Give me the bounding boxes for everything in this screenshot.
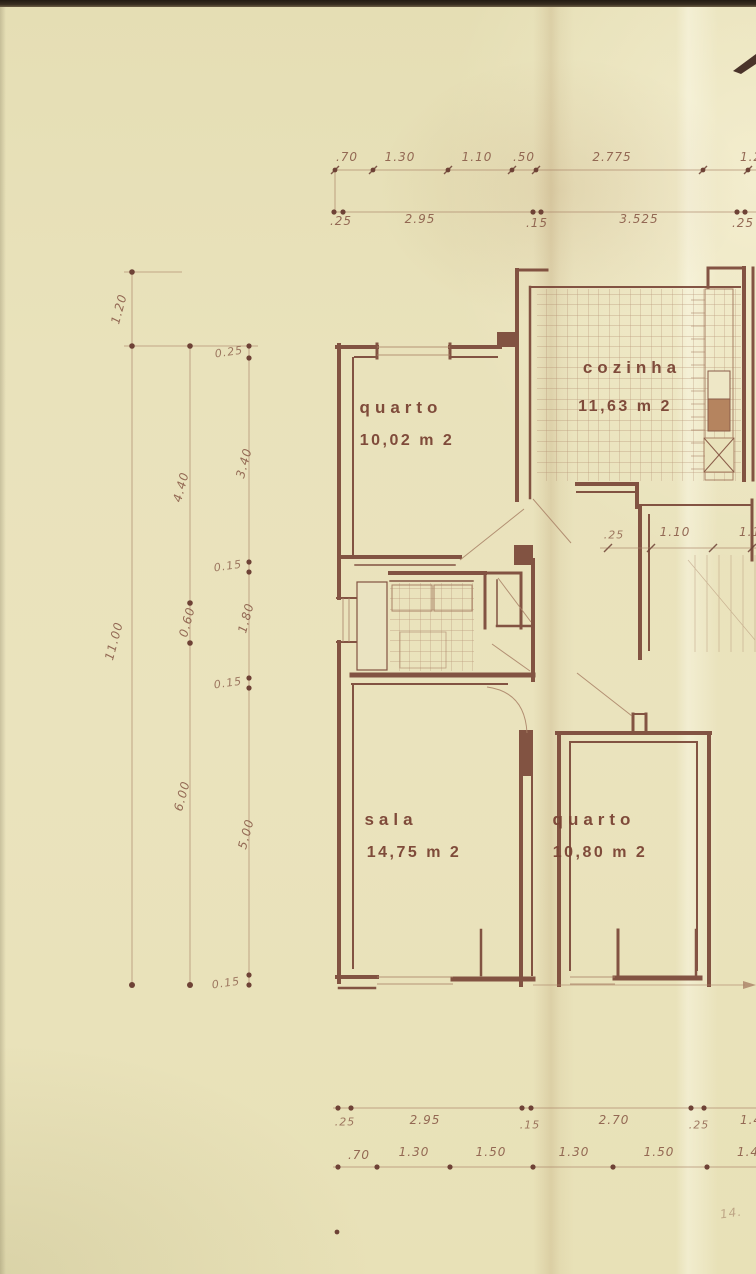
dim-hall-0: .25 bbox=[604, 529, 625, 542]
dim-hall-1: 1.10 bbox=[660, 525, 691, 539]
dim-bottom1-0: .25 bbox=[335, 1116, 356, 1129]
dim-top1-0: .70 bbox=[336, 150, 358, 164]
dim-bottom1-4: .25 bbox=[689, 1119, 710, 1132]
room-label-quarto-1: quarto bbox=[360, 398, 443, 418]
dim-top2-3: 3.525 bbox=[619, 212, 658, 226]
scanned-floor-plan: quarto 10,02 m 2 cozinha 11,63 m 2 sala … bbox=[0, 0, 756, 1274]
dim-top1-2: 1.10 bbox=[462, 150, 493, 164]
room-label-sala: sala bbox=[364, 810, 417, 830]
stairs-hatch bbox=[688, 555, 755, 652]
dim-hall-2: 1.1 bbox=[739, 525, 756, 539]
dim-bottom2-5: 1.4 bbox=[737, 1145, 756, 1159]
dim-bottom2-2: 1.50 bbox=[476, 1145, 507, 1159]
top-dimension-lines bbox=[331, 166, 756, 212]
dim-top2-2: .15 bbox=[526, 216, 548, 230]
boundary-line bbox=[533, 981, 756, 989]
corner-mark bbox=[733, 54, 756, 74]
dim-bottom2-0: .70 bbox=[348, 1148, 370, 1162]
hall-dimension-line bbox=[600, 544, 756, 552]
dim-bottom1-5: 1.4 bbox=[740, 1113, 756, 1127]
dim-bottom1-2: .15 bbox=[520, 1119, 541, 1132]
bathroom-tile-grid bbox=[390, 583, 474, 671]
room-area-cozinha: 11,63 m 2 bbox=[578, 398, 672, 416]
dim-top1-1: 1.30 bbox=[385, 150, 416, 164]
sink-basin bbox=[708, 399, 730, 431]
dim-bottom2-1: 1.30 bbox=[399, 1145, 430, 1159]
dim-top1-4: 2.775 bbox=[592, 150, 631, 164]
room-area-sala: 14,75 m 2 bbox=[367, 844, 462, 862]
room-area-quarto-2: 10,80 m 2 bbox=[553, 844, 648, 862]
dim-bottom2-3: 1.30 bbox=[559, 1145, 590, 1159]
dim-top1-3: .50 bbox=[513, 150, 535, 164]
sink bbox=[708, 371, 730, 399]
top-dimension-dots bbox=[331, 168, 750, 215]
dim-top1-5: 1.2 bbox=[740, 150, 756, 164]
dim-top2-0: .25 bbox=[330, 214, 352, 228]
dim-bottom2-4: 1.50 bbox=[644, 1145, 675, 1159]
room-label-cozinha: cozinha bbox=[583, 358, 681, 378]
dim-top2-4: .25 bbox=[732, 216, 754, 230]
dim-bottom1-3: 2.70 bbox=[599, 1113, 630, 1127]
room-label-quarto-2: quarto bbox=[553, 810, 636, 830]
dim-top2-1: 2.95 bbox=[405, 212, 436, 226]
room-area-quarto-1: 10,02 m 2 bbox=[360, 432, 455, 450]
dim-bottom1-1: 2.95 bbox=[410, 1113, 441, 1127]
bottom-dimension-lines bbox=[333, 1108, 756, 1167]
